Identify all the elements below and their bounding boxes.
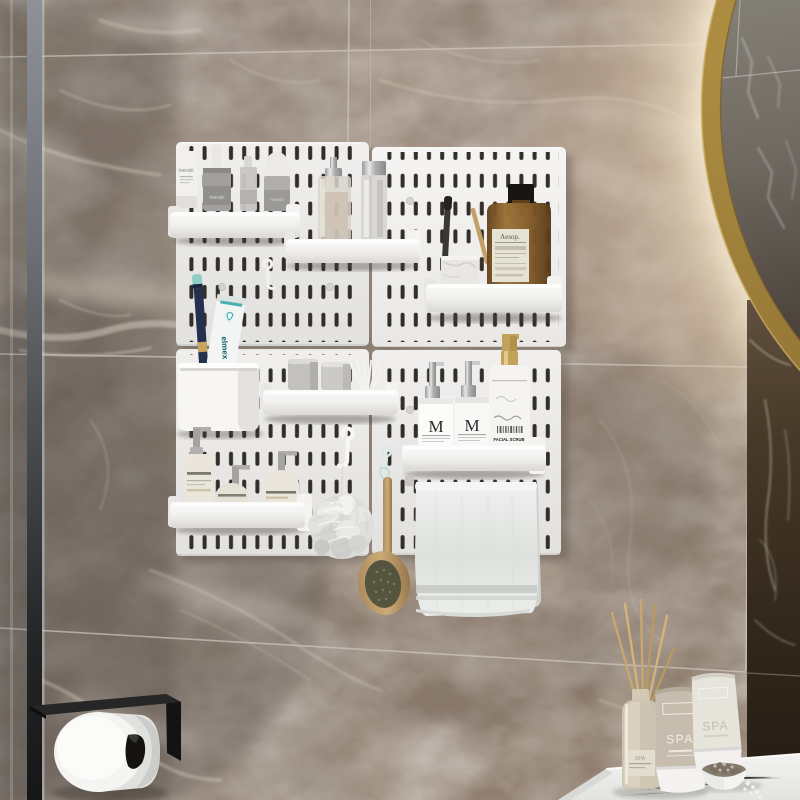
- svg-text:SPA: SPA: [666, 731, 694, 746]
- svg-text:FACIAL SCRUB: FACIAL SCRUB: [493, 437, 524, 442]
- svg-text:Aesop.: Aesop.: [500, 233, 520, 241]
- svg-text:meraki: meraki: [178, 168, 193, 174]
- svg-text:M: M: [428, 417, 443, 436]
- svg-text:meraki: meraki: [209, 195, 224, 201]
- svg-text:SPA: SPA: [635, 756, 646, 762]
- svg-text:SPA: SPA: [702, 718, 729, 733]
- svg-text:M: M: [464, 416, 479, 435]
- svg-text:elmex: elmex: [220, 336, 230, 360]
- svg-text:meraki: meraki: [270, 197, 284, 202]
